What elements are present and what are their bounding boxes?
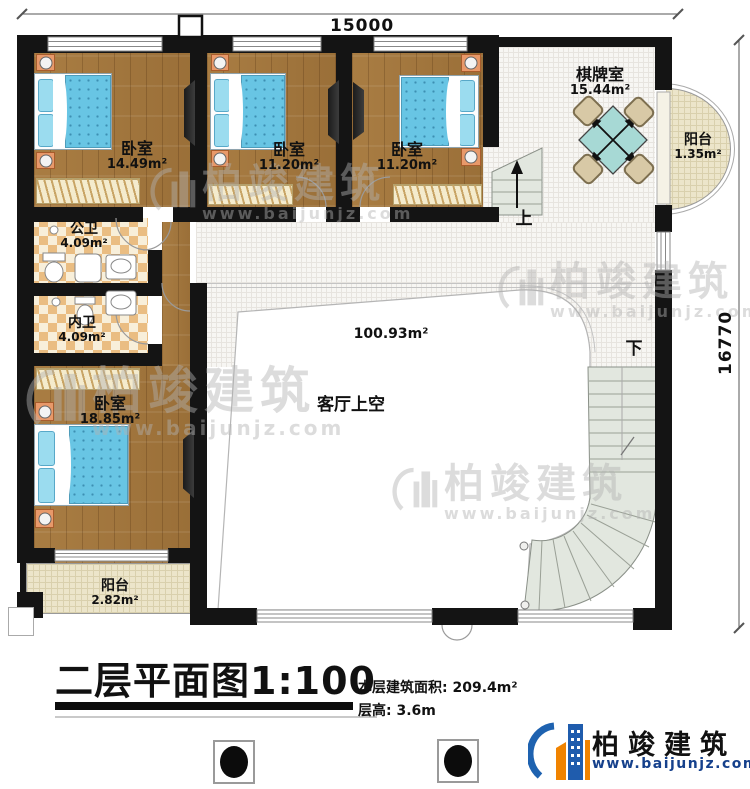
room-name: 阳台 <box>91 578 138 594</box>
nightstand <box>36 152 55 169</box>
wardrobe <box>36 368 140 390</box>
room-label-bedroom-3: 卧室 11.20m² <box>377 141 437 174</box>
room-label-bedroom-2: 卧室 11.20m² <box>259 141 319 174</box>
nightstand <box>461 148 481 166</box>
room-name: 卧室 <box>80 395 140 413</box>
room-name: 卧室 <box>107 140 167 158</box>
stair-direction: 上 <box>516 210 533 230</box>
nightstand <box>211 54 229 71</box>
room-area: 4.09m² <box>58 331 105 345</box>
title-underline <box>55 702 353 710</box>
brand-url: www.baijunjz.com <box>592 756 750 772</box>
column-marker <box>8 607 34 636</box>
stair-down-label: 下 <box>626 340 643 360</box>
void-name-label: 客厅上空 <box>317 396 385 416</box>
room-label-private-bath: 内卫 4.09m² <box>58 315 105 345</box>
bed <box>34 73 112 150</box>
room-name: 阳台 <box>674 132 721 148</box>
tv <box>184 80 195 146</box>
room-area: 100.93m² <box>354 326 429 342</box>
room-label-public-bath: 公卫 4.09m² <box>60 221 107 251</box>
room-name: 公卫 <box>60 221 107 237</box>
room-area: 15.44m² <box>570 84 630 99</box>
bed <box>399 75 479 148</box>
wardrobe <box>208 184 293 205</box>
room-area: 14.49m² <box>107 158 167 173</box>
room-label-game-room: 棋牌室 15.44m² <box>570 66 630 99</box>
dimension-width: 15000 <box>330 16 394 36</box>
room-area: 2.82m² <box>91 594 138 608</box>
room-area: 4.09m² <box>60 237 107 251</box>
void-area-label: 100.93m² <box>354 326 429 342</box>
floor-area-text: 本层建筑面积: 209.4m² <box>358 677 517 697</box>
room-name: 棋牌室 <box>570 66 630 84</box>
wardrobe <box>393 184 482 205</box>
room-label-right-balcony: 阳台 1.35m² <box>674 132 721 162</box>
column-marker <box>213 740 255 784</box>
room-label-bedroom-1: 卧室 14.49m² <box>107 140 167 173</box>
room-area: 11.20m² <box>259 159 319 174</box>
title-underline-thin <box>55 716 377 718</box>
tv <box>328 80 339 144</box>
tv <box>353 82 364 140</box>
nightstand <box>36 54 55 71</box>
room-label-bedroom-4: 卧室 18.85m² <box>80 395 140 428</box>
nightstand <box>461 54 481 72</box>
room-area: 18.85m² <box>80 413 140 428</box>
room-name: 卧室 <box>259 141 319 159</box>
room-area: 11.20m² <box>377 159 437 174</box>
column-marker <box>437 739 479 783</box>
stair-up-label: 上 <box>516 210 533 230</box>
room-name: 客厅上空 <box>317 396 385 416</box>
bed <box>210 73 286 150</box>
plan-title: 二层平面图1:100 <box>55 650 376 705</box>
bed <box>34 424 129 506</box>
dimension-height: 16770 <box>716 311 736 375</box>
nightstand <box>35 402 54 421</box>
room-name: 内卫 <box>58 315 105 331</box>
room-name: 卧室 <box>377 141 437 159</box>
nightstand <box>211 150 229 167</box>
room-area: 1.35m² <box>674 148 721 162</box>
brand-logo-icon <box>528 714 590 784</box>
floor-plan-page: { "dims": { "width": "15000", "height": … <box>0 0 750 789</box>
wardrobe <box>36 178 140 204</box>
nightstand <box>35 509 54 528</box>
stair-direction: 下 <box>626 340 643 360</box>
floor-height-text: 层高: 3.6m <box>358 700 436 720</box>
room-label-bottom-balcony: 阳台 2.82m² <box>91 578 138 608</box>
tv <box>183 430 194 498</box>
